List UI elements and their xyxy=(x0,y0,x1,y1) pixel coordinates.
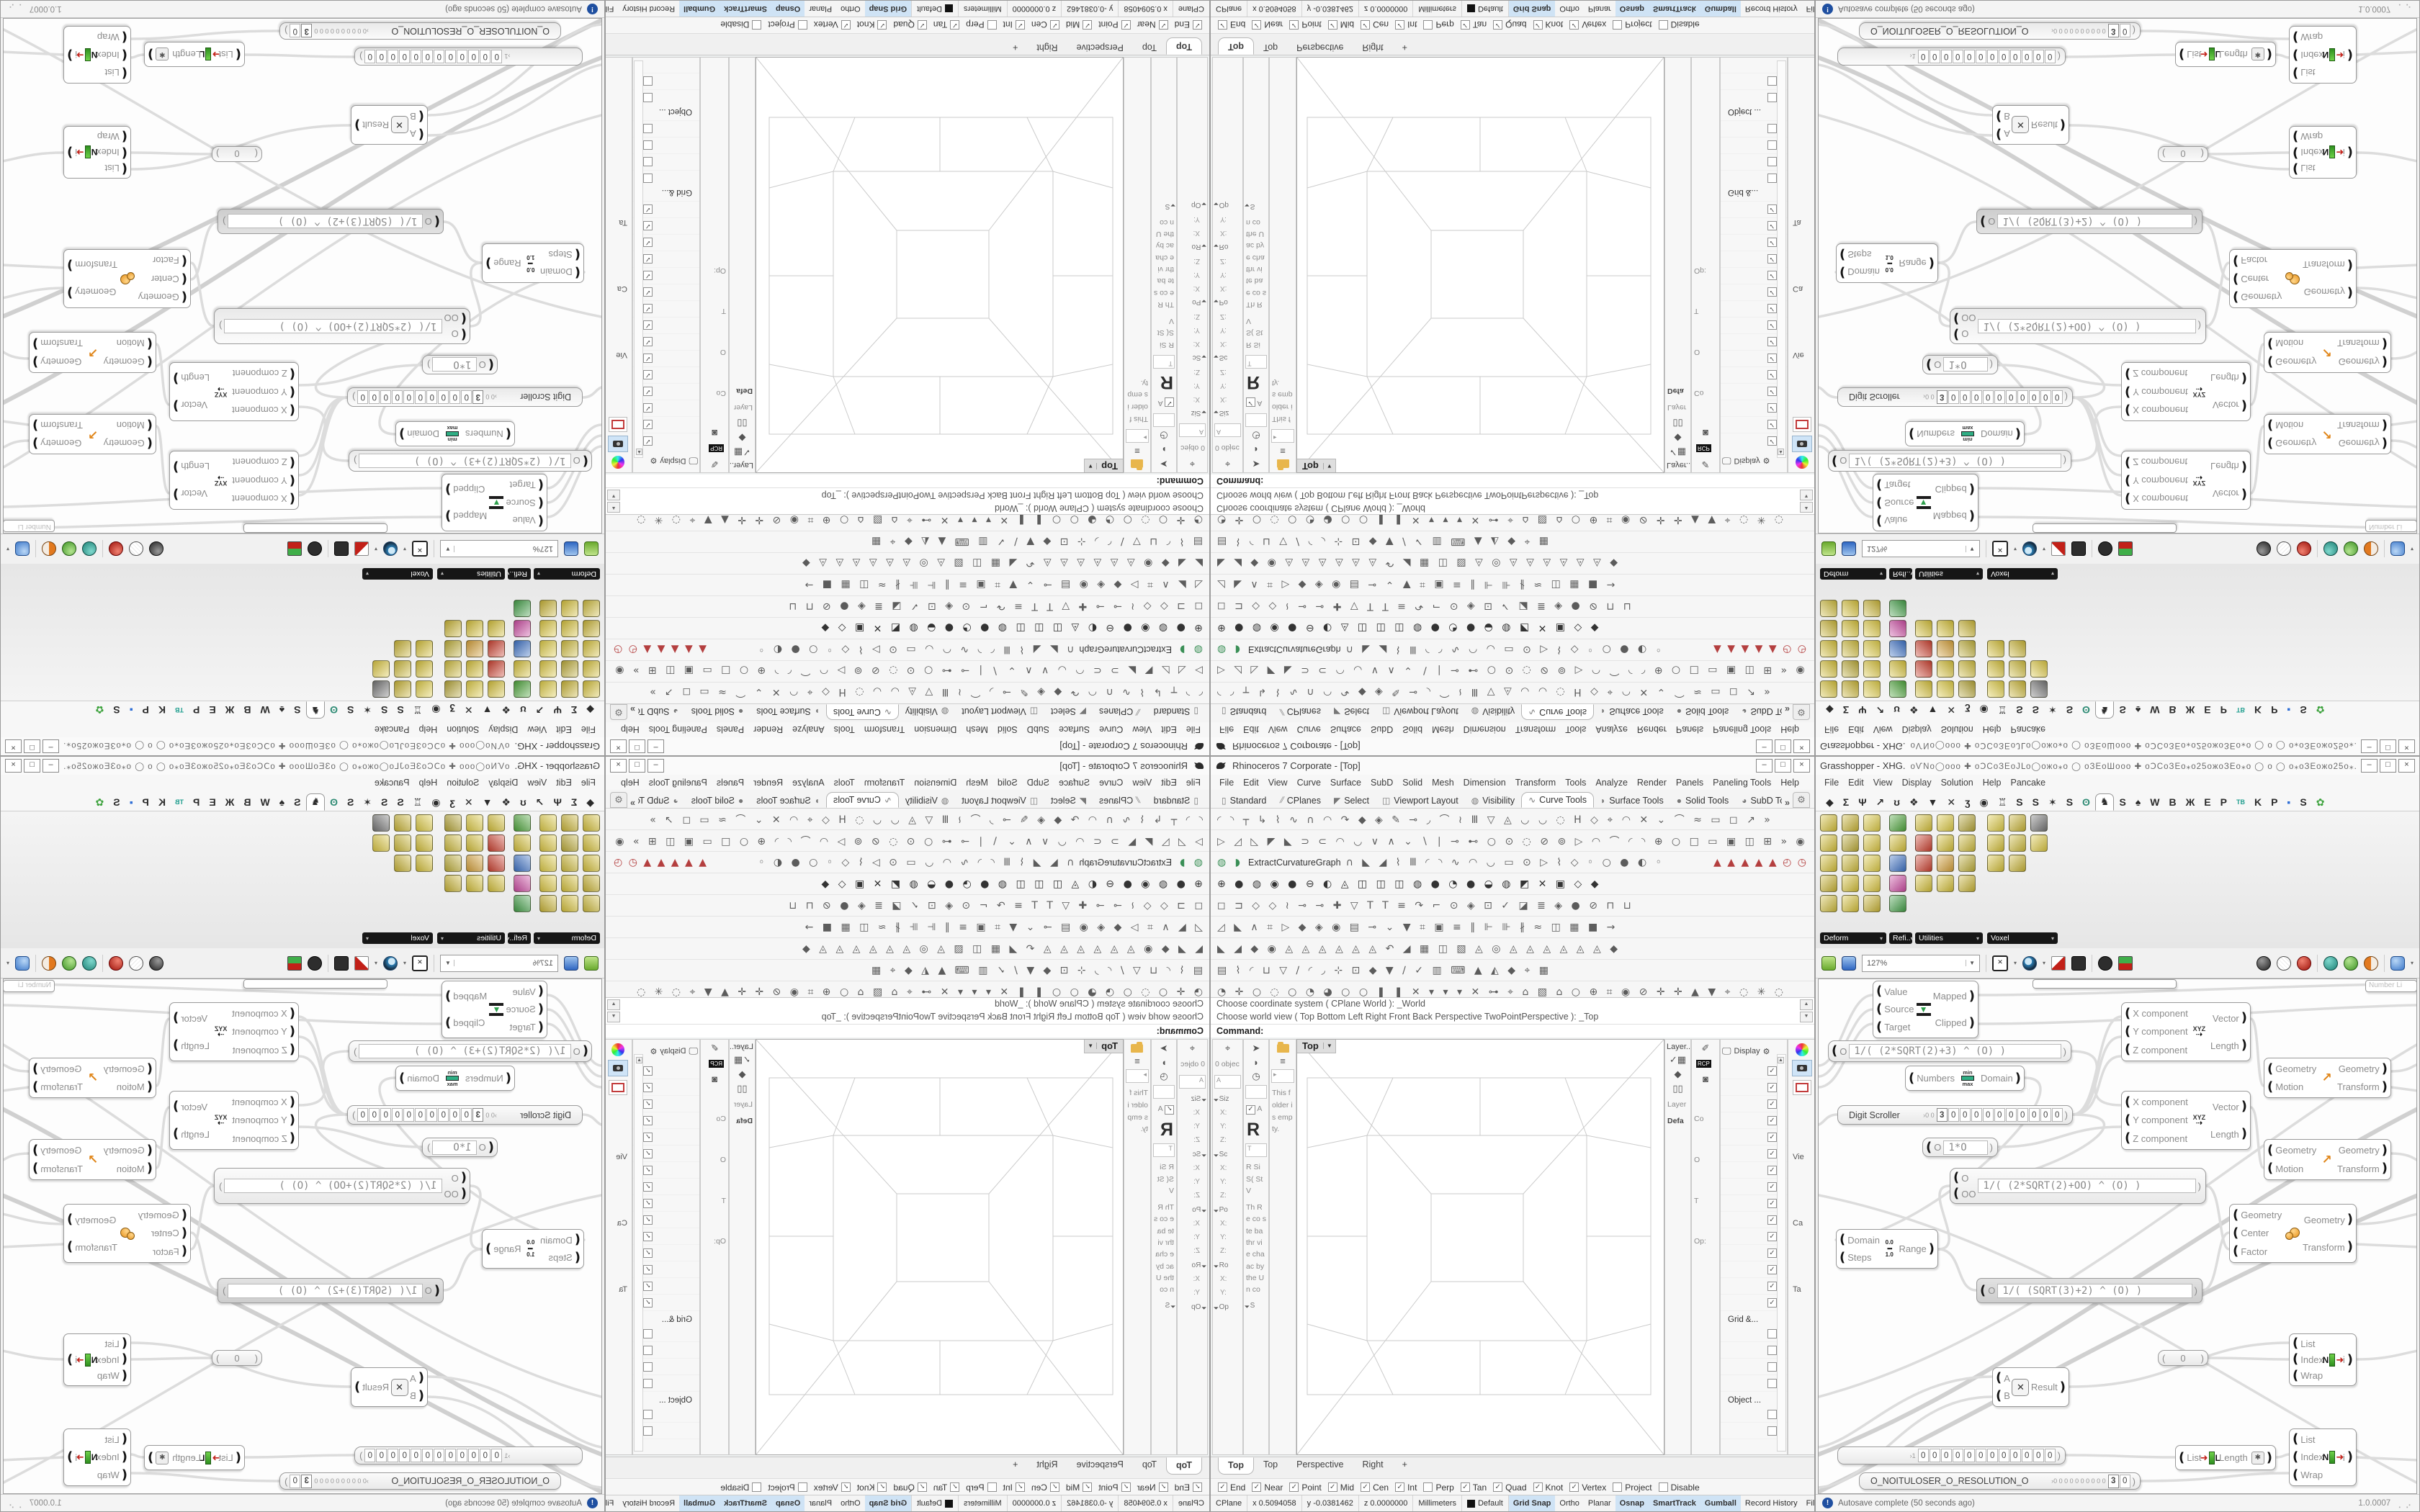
palette-group-label[interactable]: Voxel▾ xyxy=(1987,932,2058,944)
checkbox-icon[interactable] xyxy=(643,371,653,380)
rhino-menu-view[interactable]: View xyxy=(1268,725,1288,735)
hamburger-icon[interactable]: ≡ xyxy=(1124,446,1150,456)
gh-category-tab-12[interactable]: S xyxy=(2028,795,2043,811)
port-arc-icon[interactable]: ) xyxy=(2382,439,2388,448)
rhino-tab-select[interactable]: ◤Select xyxy=(1044,793,1093,808)
toolbar-icons[interactable]: ◣ ◢ ◆ ◉ ◬ ◬ ◬ ◬ ◬ ◬ ↶ ◢ ▦ ◫ ▧ ◬ ◎ ◬ ◬ ◬ … xyxy=(1217,943,1621,955)
toolbar-row-6[interactable]: ◿ ◣ ∧ ⌗ ▷ ◆ ◈ ◉ ▤ ⊸ ⌄ ▼ ⌗ ▣ ≡ ∥ ⊩ ⊪ ∦ ≈ … xyxy=(606,917,1209,938)
checkbox-icon[interactable] xyxy=(1613,20,1622,30)
minimize-button[interactable]: – xyxy=(42,739,59,753)
preview-eye-icon[interactable] xyxy=(2022,956,2037,971)
gh-node-ports-18[interactable]: (List(Index(WrapN➜i) xyxy=(2289,26,2357,84)
layer-tools-icon[interactable]: ✓▦ xyxy=(1665,1054,1690,1066)
port-arc-icon[interactable]: ( xyxy=(538,480,544,489)
gh-node-ports-2[interactable]: (Value(Source(Target▼Mapped)Clipped) xyxy=(442,474,547,531)
scroller-digit[interactable]: 0 xyxy=(380,1108,391,1122)
scroller-digit[interactable]: 0 xyxy=(1918,50,1929,63)
component-icon[interactable] xyxy=(1889,875,1906,892)
rhino-titlebar[interactable]: Rhinoceros 7 Corporate - [Top] –□× xyxy=(606,737,1209,755)
input-port-list[interactable]: (List xyxy=(97,1434,127,1445)
port-arc-icon[interactable]: ) xyxy=(2195,216,2197,227)
toolbar-row-2[interactable]: ▷ ◿ ◺ ◤ ◣ ⊃ ⊂ ◠ ◡ ∨ ∧ ⌄ ∖ ∣ ⊸ ⊷ ○ ⊙ ◌ ⊘ … xyxy=(606,830,1209,852)
new-layer-icon[interactable]: ▯▯ xyxy=(1665,418,1690,429)
component-icon[interactable] xyxy=(1915,875,1932,892)
port-arc-icon[interactable]: ( xyxy=(290,387,295,396)
gh-titlebar[interactable]: Grasshopper - XHG. oѴNo◯ooo ✚ oↃCoЗEoЈԼo… xyxy=(1,757,604,775)
gh-node-expr-3[interactable]: (O1/( (2*SQRT(2)+3) ^ (O) )) xyxy=(349,450,592,472)
pen-icon[interactable]: ✐ xyxy=(1692,458,1719,469)
toolbar-row-1[interactable]: ◜ ◝ ┬ ↳ ⌇ ∿ ∩ ◠ ↷ ◆ ◈ ✎ ⊸ ◞ ⌒ ≀ Ⅲ ▽ ◬ ◡ … xyxy=(1211,682,1814,703)
port-arc-icon[interactable]: ( xyxy=(2293,1435,2298,1444)
checkbox-icon[interactable] xyxy=(1767,420,1777,430)
side-tab-ca[interactable]: Ca xyxy=(1793,1219,1815,1228)
gh-category-tab-22[interactable]: E xyxy=(2200,795,2215,811)
side-tab-ta[interactable]: Ta xyxy=(1793,1285,1815,1294)
port-arc-icon[interactable]: ) xyxy=(352,1110,355,1120)
checkbox-icon[interactable] xyxy=(1767,404,1777,413)
gh-node-num-16[interactable]: (0) xyxy=(212,146,262,162)
output-port-length[interactable]: Length) xyxy=(173,1129,210,1140)
checkbox-icon[interactable] xyxy=(918,1482,927,1492)
input-port-source[interactable]: (Source xyxy=(1876,1004,1914,1014)
scroller-digit[interactable]: 0 xyxy=(1976,50,1986,63)
port-arc-icon[interactable]: ) xyxy=(2063,1046,2066,1057)
viewport-top[interactable]: Top ▼ xyxy=(1296,57,1664,473)
port-arc-icon[interactable]: ) xyxy=(67,1215,73,1224)
output-port-transform[interactable]: Transform) xyxy=(32,1164,83,1174)
gh-category-tab-7[interactable]: ✕ xyxy=(1942,701,1960,717)
gh-node-ports-7[interactable]: (X component(Y component(Z componentXYZ⇢… xyxy=(2121,451,2251,510)
rhino-menu-tools[interactable]: Tools xyxy=(1565,725,1586,735)
gh-category-tab-6[interactable]: ▼ xyxy=(478,795,497,811)
port-arc-icon[interactable]: ( xyxy=(2162,1353,2165,1364)
input-port-x-component[interactable]: (X component xyxy=(2125,1008,2188,1019)
component-icon[interactable] xyxy=(444,680,462,698)
checkbox-icon[interactable] xyxy=(798,20,807,30)
checkbox-icon[interactable] xyxy=(643,1346,653,1355)
component-icon[interactable] xyxy=(1842,680,1859,698)
named-views-panel[interactable]: VieCaTa xyxy=(1788,57,1815,473)
layer-tools-icon[interactable]: ✓▦ xyxy=(1665,446,1690,458)
component-icon[interactable] xyxy=(539,600,557,617)
component-icon[interactable] xyxy=(561,834,578,852)
osnap-quad[interactable]: Quad xyxy=(1493,1482,1526,1493)
port-arc-icon[interactable]: ( xyxy=(122,50,127,59)
output-port-i[interactable]: i) xyxy=(2343,1452,2353,1463)
toolbar-icons[interactable]: ∩ ◣ ◢ ⌇ Ⅲ ◜ ◝ ∿ ◠ ◡ ▭ ⊙ ▷ ⌇ ◇ ◦ ○ ● ◐ ◦ xyxy=(756,857,1074,868)
maximize-button[interactable]: □ xyxy=(1775,739,1791,753)
boxedit-section-op[interactable]: Op xyxy=(1214,201,1241,209)
gh-category-tab-2[interactable]: Ψ xyxy=(1854,795,1870,811)
output-port-i[interactable]: i) xyxy=(2343,50,2353,60)
toolbar-icons[interactable]: ⊕ ● ◍ ◉ ● ⊖ ◐ ◬ ◫ ◫ ◫ ◍ ● ◔ ● ◒ ◍ ◩ ✕ ▣ … xyxy=(819,623,1203,634)
port-arc-icon[interactable]: ) xyxy=(445,992,451,1001)
port-arc-icon[interactable]: ( xyxy=(255,1353,258,1364)
toolbar-row-3[interactable]: ◍ ◗ExtractCurvatureGraph∩ ◣ ◢ ⌇ Ⅲ ◜ ◝ ∿ … xyxy=(1211,639,1814,660)
preview-wireframe-icon[interactable] xyxy=(2277,542,2291,557)
port-arc-icon[interactable]: ( xyxy=(2125,1116,2130,1125)
osnap-perp[interactable]: Perp xyxy=(1423,20,1453,30)
checkbox-icon[interactable] xyxy=(1050,20,1059,30)
gh-node-ports-2[interactable]: (Value(Source(Target▼Mapped)Clipped) xyxy=(1873,981,1978,1038)
component-icon[interactable] xyxy=(1863,895,1881,912)
gh-category-tab-25[interactable]: K xyxy=(154,701,170,717)
status-toggle-filter[interactable]: Filter xyxy=(606,1495,618,1511)
gh-node-ports-4[interactable]: (NumbersminmaxDomain) xyxy=(395,421,515,446)
osnap-cen[interactable]: Cen xyxy=(1361,20,1389,30)
input-port-o[interactable]: (O xyxy=(1926,359,1941,370)
scroller-digit[interactable]: 0 xyxy=(369,390,380,404)
gh-category-tab-9[interactable]: ◉ xyxy=(427,795,444,811)
viewport-tab-perspective[interactable]: Perspective xyxy=(1287,39,1353,55)
rhino-menu-paneling-tools[interactable]: Paneling Tools xyxy=(1713,778,1771,788)
port-arc-icon[interactable]: ( xyxy=(2293,164,2298,173)
rhino-tab-curve-tools[interactable]: ∿Curve Tools xyxy=(1521,704,1594,720)
status-cell-0[interactable]: CPlane xyxy=(1173,1495,1209,1511)
component-icon[interactable] xyxy=(466,680,483,698)
status-cell-0[interactable]: CPlane xyxy=(1211,1495,1247,1511)
scroller-digit[interactable]: 0 xyxy=(392,390,403,404)
input-port-z-component[interactable]: (Z component xyxy=(2125,1133,2188,1144)
gh-category-tab-8[interactable]: ʒ xyxy=(446,795,460,811)
display-panel[interactable]: 🖵Display⚙Grid &...Object ...▲ xyxy=(632,57,700,473)
rhino-tab-subd-too[interactable]: ◕SubD Too xyxy=(1735,793,1782,808)
port-arc-icon[interactable]: ( xyxy=(181,256,187,265)
zoom-dropdown[interactable]: 127% ▼ xyxy=(1862,541,1980,558)
checkbox-icon[interactable] xyxy=(841,1482,851,1492)
component-icon[interactable] xyxy=(372,680,390,698)
toolbar-tail-icons[interactable]: ▲ ▲ ▲ ▲ ▲ ◴ ◷ xyxy=(612,857,707,868)
preview-shaded-icon[interactable] xyxy=(2297,956,2311,971)
status-toggle-ortho[interactable]: Ortho xyxy=(1555,1495,1584,1511)
toolbar-row-8[interactable]: ▤ ⌇ ◜ ⊔ ▽ ∕ ◜ ◞ ⊹ ⊡ ◆ ▼ ∕ ✓ ▥ ⌨ ▲ ◭ ◆ ⌖ … xyxy=(606,531,1209,552)
port-arc-icon[interactable]: ( xyxy=(2233,274,2238,283)
toolbar-lead-icons[interactable]: ◍ ◗ xyxy=(1177,644,1203,656)
port-arc-icon[interactable]: ( xyxy=(2125,1027,2130,1036)
boxedit-section-sc[interactable]: Sc xyxy=(1214,354,1241,361)
output-port-vector[interactable]: Vector) xyxy=(2210,1013,2247,1024)
port-arc-icon[interactable]: ( xyxy=(2267,421,2273,430)
display-mode-icon[interactable] xyxy=(15,956,30,971)
rhino-menu-surface[interactable]: Surface xyxy=(1330,778,1361,788)
input-port-o[interactable]: (O xyxy=(444,329,467,340)
osnap-point[interactable]: Point xyxy=(1289,20,1321,30)
status-toggle-planar[interactable]: Planar xyxy=(805,1,836,17)
input-port-list[interactable]: (List xyxy=(2293,1434,2323,1445)
osnap-near[interactable]: Near xyxy=(1252,1482,1283,1493)
chevron-down-icon[interactable]: ▼ xyxy=(1323,463,1332,469)
scroller-digit[interactable]: 0 xyxy=(376,50,387,63)
layer-wedge-icon[interactable]: ◆ xyxy=(730,1068,755,1080)
gh-category-tab-27[interactable]: ▪ xyxy=(2282,795,2295,811)
gh-node-ports-19[interactable]: (List➜LLength✱) xyxy=(144,1445,245,1470)
scroller-digit[interactable]: 0 xyxy=(2033,1449,2044,1462)
checkbox-icon[interactable] xyxy=(1767,1248,1777,1258)
toolbar-icons[interactable]: ▷ ◿ ◺ ◤ ◣ ⊃ ⊂ ◠ ◡ ∨ ∧ ⌄ ∖ ∣ ⊸ ⊷ ○ ⊙ ◌ ⊘ … xyxy=(1217,665,1814,679)
boxedit-section-po[interactable]: Po xyxy=(1214,298,1241,306)
scroller-digit[interactable]: 0 xyxy=(2120,24,2130,38)
port-arc-icon[interactable]: ) xyxy=(2241,401,2247,410)
port-arc-icon[interactable]: ) xyxy=(2241,490,2247,498)
port-arc-icon[interactable]: ) xyxy=(2241,1102,2247,1111)
gh-canvas[interactable]: Number Li(Value(Source(Target▼Mapped)Cli… xyxy=(3,18,602,534)
status-cell-4[interactable]: Millimeters xyxy=(1413,1495,1462,1511)
port-arc-icon[interactable]: ( xyxy=(1832,1047,1837,1056)
rhino-menu-transform[interactable]: Transform xyxy=(1515,778,1556,788)
folder-icon[interactable] xyxy=(1277,459,1289,468)
custom-preview-green-icon[interactable] xyxy=(2344,542,2358,557)
gh-category-tab-6[interactable]: ▼ xyxy=(478,701,497,717)
status-toggle-planar[interactable]: Planar xyxy=(1584,1,1615,17)
chevron-down-icon[interactable]: ▾ xyxy=(2411,960,2414,966)
gh-category-tab-6[interactable]: ▼ xyxy=(1924,701,1942,717)
checkbox-icon[interactable] xyxy=(1165,398,1174,408)
component-icon[interactable] xyxy=(1937,834,1954,852)
scroll-up-icon[interactable]: ▲ xyxy=(1800,502,1813,513)
osnap-project[interactable]: Project xyxy=(768,20,807,30)
gh-node-ports-13[interactable]: (Domain(Steps0.0▪▪▪1.0Range) xyxy=(482,243,584,283)
component-icon[interactable] xyxy=(583,814,600,832)
gh-category-tab-1[interactable]: Σ xyxy=(567,795,581,811)
gh-node-scroller-20[interactable]: ›1000000000000) xyxy=(354,1446,583,1464)
palette-group-label[interactable]: Deform▾ xyxy=(534,932,600,944)
gh-category-tab-9[interactable]: ◉ xyxy=(1975,795,1992,811)
input-port-value[interactable]: (Value xyxy=(1876,515,1914,526)
gh-node-scroller-21[interactable]: O_NOITULOSER_O_RESOLUTION_O›0 0 0 0 0 0 … xyxy=(1859,22,2141,40)
output-port-clipped[interactable]: Clipped) xyxy=(1933,484,1975,495)
gh-category-tab-8[interactable]: ʒ xyxy=(1960,701,1974,717)
checkbox-icon[interactable] xyxy=(841,20,851,30)
minimize-button[interactable]: – xyxy=(2361,739,2378,753)
scroll-up-icon[interactable]: ▲ xyxy=(636,449,642,455)
port-arc-icon[interactable]: ( xyxy=(583,456,588,465)
port-arc-icon[interactable]: ( xyxy=(488,361,494,369)
preview-wireframe-icon[interactable] xyxy=(129,542,143,557)
port-arc-icon[interactable]: ) xyxy=(1990,1142,1993,1153)
checkbox-icon[interactable] xyxy=(1767,1282,1777,1291)
gh-category-tab-10[interactable]: ♖ xyxy=(409,701,427,717)
port-arc-icon[interactable]: ) xyxy=(2382,1083,2388,1092)
toolbar-row-7[interactable]: ◣ ◢ ◆ ◉ ◬ ◬ ◬ ◬ ◬ ◬ ↶ ◢ ▦ ◫ ▧ ◬ ◎ ◬ ◬ ◬ … xyxy=(606,552,1209,574)
gh-category-tab-11[interactable]: S xyxy=(2012,795,2027,811)
checkbox-icon[interactable] xyxy=(1016,20,1025,30)
gh-node-ports-7[interactable]: (X component(Y component(Z componentXYZ⇢… xyxy=(2121,1002,2251,1061)
port-arc-icon[interactable]: ( xyxy=(461,1189,467,1198)
layers-panel[interactable]: Layer...✓▦◆▯▯LayerDefa xyxy=(729,57,756,473)
input-port-list[interactable]: (List xyxy=(97,1338,127,1349)
toolbar-row-6[interactable]: ◿ ◣ ∧ ⌗ ▷ ◆ ◈ ◉ ▤ ⊸ ⌄ ▼ ⌗ ▣ ≡ ∥ ⊩ ⊪ ∦ ≈ … xyxy=(606,574,1209,595)
output-port-range[interactable]: Range) xyxy=(1899,258,1935,269)
port-arc-icon[interactable]: ( xyxy=(2293,1471,2298,1480)
input-port-b[interactable]: (B xyxy=(410,111,424,122)
component-icon[interactable] xyxy=(1820,814,1837,832)
port-arc-icon[interactable]: ) xyxy=(67,50,73,59)
scroller-digit[interactable]: 0 xyxy=(1960,1108,1971,1122)
input-port-o[interactable]: (O xyxy=(1980,216,1995,227)
port-arc-icon[interactable]: ( xyxy=(122,1435,127,1444)
rhino-menu-file[interactable]: File xyxy=(1219,725,1234,735)
component-icon[interactable] xyxy=(539,895,557,912)
output-port-clipped[interactable]: Clipped) xyxy=(445,484,487,495)
component-icon[interactable] xyxy=(2030,660,2048,678)
capture-frame-button[interactable] xyxy=(609,1080,628,1095)
gh-category-tab-1[interactable]: Σ xyxy=(1839,701,1853,717)
scroller-digit[interactable]: 0 xyxy=(357,1108,368,1122)
component-icon[interactable] xyxy=(1820,680,1837,698)
port-arc-icon[interactable]: ( xyxy=(2125,369,2130,378)
rhino-menu-curve[interactable]: Curve xyxy=(1099,778,1123,788)
close-button[interactable]: × xyxy=(5,739,22,753)
layers-panel[interactable]: Layer...✓▦◆▯▯LayerDefa xyxy=(1664,57,1691,473)
toolbar-icons[interactable]: ∩ ◣ ◢ ⌇ Ⅲ ◜ ◝ ∿ ◠ ◡ ▭ ⊙ ▷ ⌇ ◇ ◦ ○ ● ◐ ◦ xyxy=(756,644,1074,656)
component-icon[interactable] xyxy=(1863,855,1881,872)
minimize-button[interactable]: – xyxy=(1756,759,1773,773)
input-port-o[interactable]: (O xyxy=(1953,329,1976,340)
command-area[interactable]: Choose coordinate system ( CPlane World … xyxy=(1211,997,1814,1038)
port-arc-icon[interactable]: ( xyxy=(2233,292,2238,301)
component-icon[interactable] xyxy=(1937,855,1954,872)
component-icon[interactable] xyxy=(372,660,390,678)
palette-group-label[interactable]: Utilities▾ xyxy=(437,932,505,944)
port-arc-icon[interactable]: ( xyxy=(2267,1065,2273,1074)
output-port-range[interactable]: Range) xyxy=(1899,1243,1935,1254)
scroll-up-icon[interactable]: ▲ xyxy=(1778,1057,1784,1063)
component-icon[interactable] xyxy=(2009,680,2026,698)
gh-category-tab-13[interactable]: ✶ xyxy=(2044,795,2061,811)
port-arc-icon[interactable]: ( xyxy=(122,32,127,41)
port-arc-icon[interactable]: ( xyxy=(1839,250,1845,258)
toolbar-button-label[interactable]: ExtractCurvatureGraph xyxy=(1079,645,1172,655)
checkbox-icon[interactable] xyxy=(643,238,653,248)
viewport-tab-top[interactable]: Top xyxy=(1166,1457,1202,1475)
component-icon[interactable] xyxy=(488,834,505,852)
input-port-geometry[interactable]: (Geometry xyxy=(2267,1063,2316,1074)
component-icon[interactable] xyxy=(561,640,578,657)
rhino-tab-standard[interactable]: ▯Standard xyxy=(1147,704,1205,719)
gh-category-tab-0[interactable]: ◆ xyxy=(1821,795,1838,811)
port-arc-icon[interactable]: ( xyxy=(2179,1454,2184,1462)
gh-category-tab-9[interactable]: ◉ xyxy=(1975,701,1992,717)
gh-node-expr-6[interactable]: (O1*O) xyxy=(1922,1138,1998,1157)
port-arc-icon[interactable]: ( xyxy=(2125,405,2130,414)
checkbox-icon[interactable] xyxy=(1165,1105,1174,1115)
layer-tools-icon[interactable]: ✓▦ xyxy=(730,1054,755,1066)
display-panel[interactable]: 🖵Display⚙Grid &...Object ...▲ xyxy=(1720,57,1788,473)
input-port-wrap[interactable]: (Wrap xyxy=(2293,32,2323,42)
port-arc-icon[interactable]: ( xyxy=(122,1372,127,1380)
checkbox-icon[interactable] xyxy=(1423,1482,1433,1492)
component-icon[interactable] xyxy=(1987,680,2004,698)
gh-category-tab-19[interactable]: W xyxy=(2146,795,2164,811)
display-title[interactable]: 🖵Display⚙ xyxy=(635,452,698,469)
input-port-value[interactable]: (Value xyxy=(506,515,544,526)
gh-category-tab-25[interactable]: K xyxy=(154,795,170,811)
component-icon[interactable] xyxy=(1842,895,1859,912)
boxedit-input[interactable]: A xyxy=(1214,423,1241,437)
checkbox-icon[interactable] xyxy=(1767,1182,1777,1192)
output-port-transform[interactable]: Transform) xyxy=(2303,260,2353,271)
layers-panel[interactable]: Layer...✓▦◆▯▯LayerDefa xyxy=(729,1039,756,1455)
input-port-list[interactable]: (List xyxy=(219,49,241,60)
side-tab-ca[interactable]: Ca xyxy=(605,284,627,293)
status-cell-4[interactable]: Millimeters xyxy=(958,1,1007,17)
checkbox-icon[interactable] xyxy=(1613,1482,1622,1492)
scroller-digit[interactable]: 0 xyxy=(438,390,449,404)
expression-text[interactable]: 1/( (2*SQRT(2)+OO) ^ (O) ) xyxy=(224,319,442,333)
gh-node-partial-1[interactable]: Number Li xyxy=(2365,520,2417,532)
osnap-quad[interactable]: Quad xyxy=(1493,20,1526,30)
side-tab-ca[interactable]: Ca xyxy=(605,1219,627,1228)
preview-off-icon[interactable] xyxy=(2257,542,2271,557)
checkbox-icon[interactable] xyxy=(1218,20,1227,30)
input-port-value[interactable]: (Value xyxy=(1876,986,1914,997)
component-icon[interactable] xyxy=(1820,895,1837,912)
palette-group-label[interactable]: Utilities▾ xyxy=(1915,932,1983,944)
camera-icon[interactable] xyxy=(2098,956,2112,971)
scroller-digit[interactable]: 3 xyxy=(1937,1108,1948,1122)
rhino-tab-cplanes[interactable]: ⫽CPlanes xyxy=(1273,793,1327,808)
toolbar-icons[interactable]: ◜ ◝ ┬ ↳ ⌇ ∿ ∩ ◠ ↷ ◆ ◈ ✎ ⊸ ◞ ⌒ ≀ Ⅲ ▽ ◬ ◡ … xyxy=(647,812,1203,827)
rhino-tab-curve-tools[interactable]: ∿Curve Tools xyxy=(826,792,899,808)
gh-category-tab-12[interactable]: S xyxy=(377,795,392,811)
input-port-list[interactable]: (List xyxy=(2179,1452,2201,1463)
component-icon[interactable] xyxy=(539,834,557,852)
rhino-menu-surface[interactable]: Surface xyxy=(1330,725,1361,735)
toolbar-lead-icons[interactable]: ◍ ◗ xyxy=(1177,857,1203,868)
layer-wedge-icon[interactable]: ◆ xyxy=(1665,1068,1690,1080)
minimize-button[interactable]: – xyxy=(2361,759,2378,773)
display-title[interactable]: 🖵Display⚙ xyxy=(635,1043,698,1060)
input-port-geometry[interactable]: (Geometry xyxy=(104,438,153,449)
status-cell-5[interactable]: Default xyxy=(911,1,958,17)
status-toggle-planar[interactable]: Planar xyxy=(805,1495,836,1511)
custom-preview-orange-icon[interactable] xyxy=(42,542,56,557)
osnap-mid[interactable]: Mid xyxy=(1328,20,1354,30)
checkbox-icon[interactable] xyxy=(1083,1482,1092,1492)
gh-category-tab-20[interactable]: B xyxy=(239,795,255,811)
properties-panel[interactable]: ✐RCP◙CoOTOp: xyxy=(700,1039,729,1455)
input-port-y-component[interactable]: (Y component xyxy=(2125,475,2188,486)
scroller-digit[interactable]: 0 xyxy=(2045,50,2056,63)
zoom-dropdown[interactable]: 127% ▼ xyxy=(440,955,558,972)
command-prompt[interactable]: Command: xyxy=(606,1024,1209,1038)
sketch-pen-icon[interactable] xyxy=(354,542,369,557)
scroller-digits[interactable]: ›0 030000000000 xyxy=(355,1108,497,1122)
rhino-tab-visibility[interactable]: ◍Visibility xyxy=(1465,704,1521,719)
gh-node-ports-4[interactable]: (NumbersminmaxDomain) xyxy=(1905,421,2025,446)
input-port-target[interactable]: (Target xyxy=(506,1022,544,1032)
checkbox-icon[interactable] xyxy=(1767,338,1777,347)
gh-category-tab-2[interactable]: Ψ xyxy=(1854,701,1870,717)
input-port-oo[interactable]: (OO xyxy=(444,1189,467,1200)
port-arc-icon[interactable]: ( xyxy=(1953,1189,1959,1198)
expression-text[interactable]: 1*O xyxy=(1943,358,1987,372)
port-arc-icon[interactable]: ( xyxy=(1926,361,1932,369)
rhino-menu-transform[interactable]: Transform xyxy=(864,725,905,735)
scroller-digit[interactable]: 0 xyxy=(1941,50,1952,63)
scroller-digit[interactable]: 0 xyxy=(290,1475,300,1488)
checkbox-icon[interactable] xyxy=(643,1362,653,1372)
port-arc-icon[interactable]: ) xyxy=(445,1019,451,1027)
component-icon[interactable] xyxy=(416,814,433,832)
component-icon[interactable] xyxy=(514,834,531,852)
component-icon[interactable] xyxy=(2030,814,2048,832)
close-button[interactable]: × xyxy=(610,739,627,753)
component-icon[interactable] xyxy=(514,660,531,678)
gumball-toggle-icon[interactable] xyxy=(334,542,349,557)
palette-group-label[interactable]: Refi..▾ xyxy=(508,932,531,944)
checkbox-icon[interactable] xyxy=(643,158,653,167)
